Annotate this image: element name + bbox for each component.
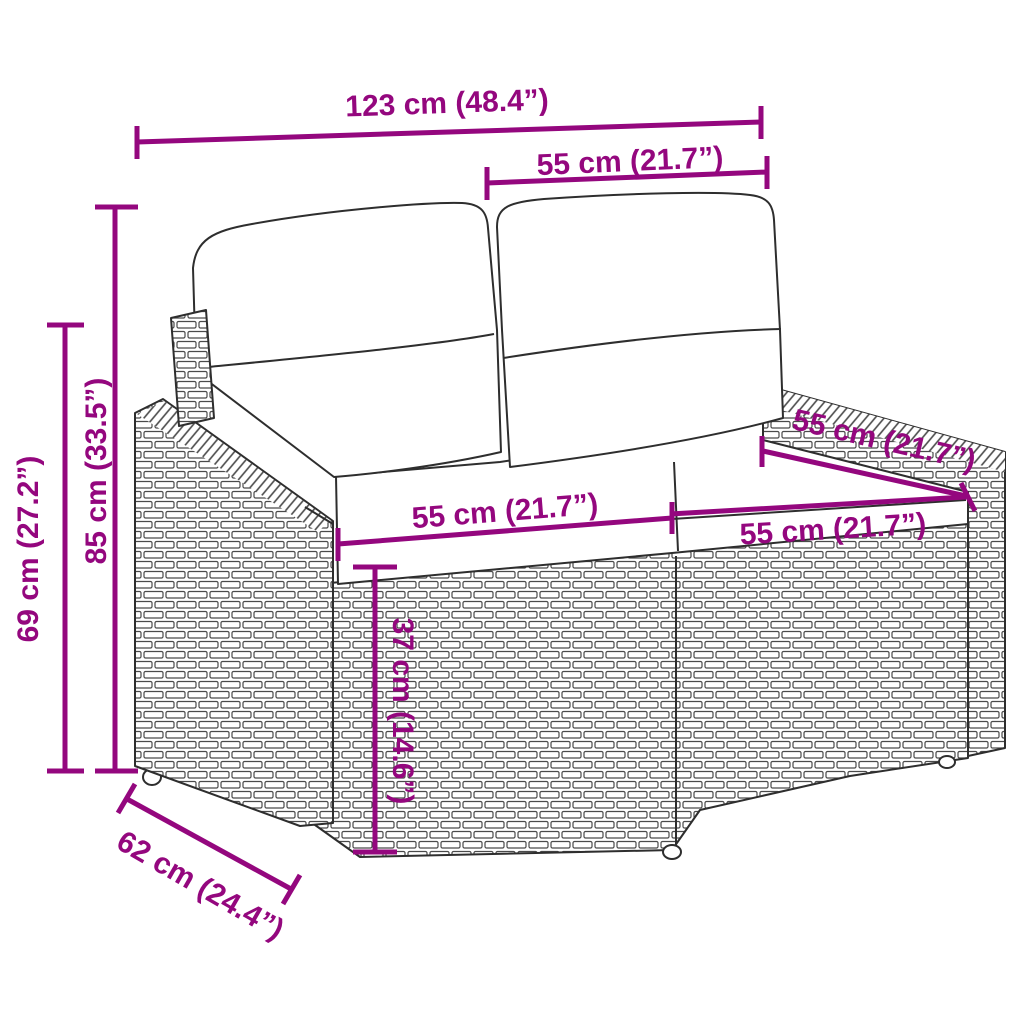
dimension-armrest-height [47,325,84,771]
dim-label-total-width: 123 cm (48.4”) [345,83,550,124]
back-post-left [171,310,214,426]
dim-label-armrest-height: 69 cm (27.2”) [12,456,46,643]
dimension-diagram: 123 cm (48.4”) 55 cm (21.7”) 85 cm (33.5… [0,0,1024,1024]
sofa-foot-middle [663,845,681,859]
sofa-foot-right [939,756,955,768]
dim-label-seat-height: 37 cm (14.6”) [385,618,419,805]
dim-label-total-height: 85 cm (33.5”) [80,378,114,565]
